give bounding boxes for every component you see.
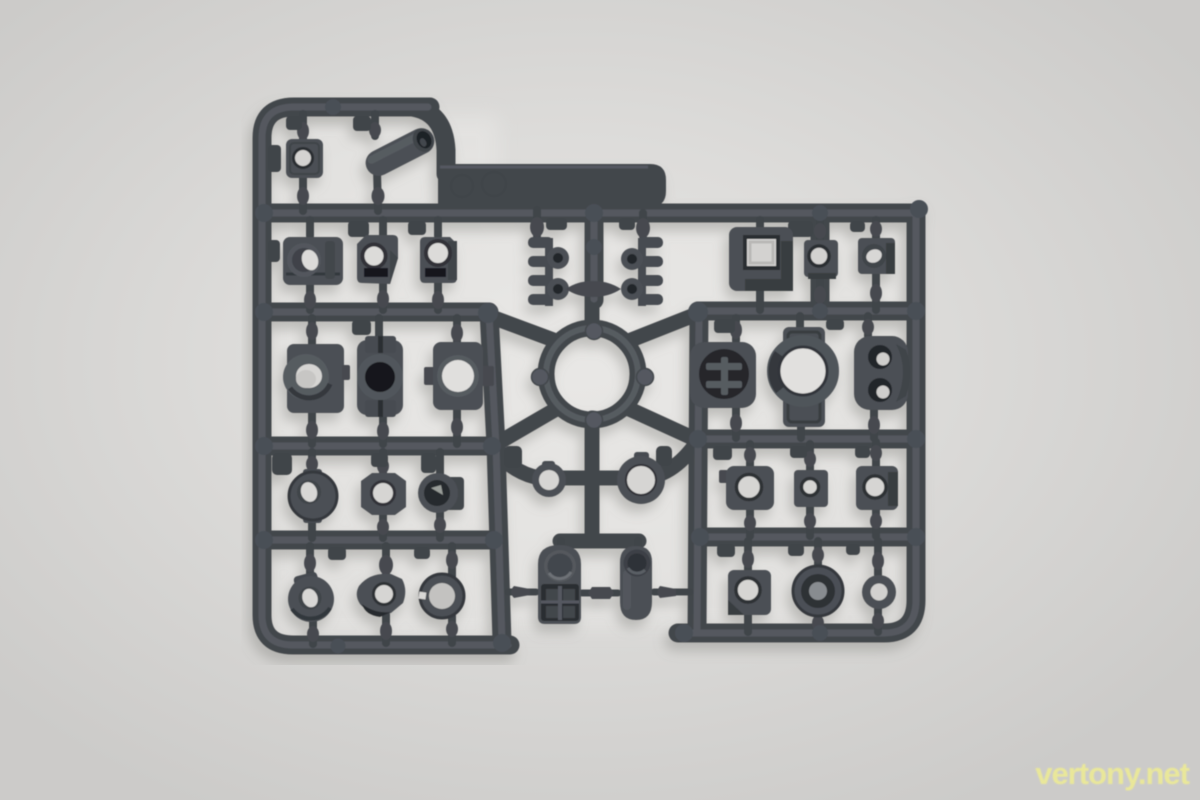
svg-text:vertony.net: vertony.net xyxy=(1035,756,1189,791)
